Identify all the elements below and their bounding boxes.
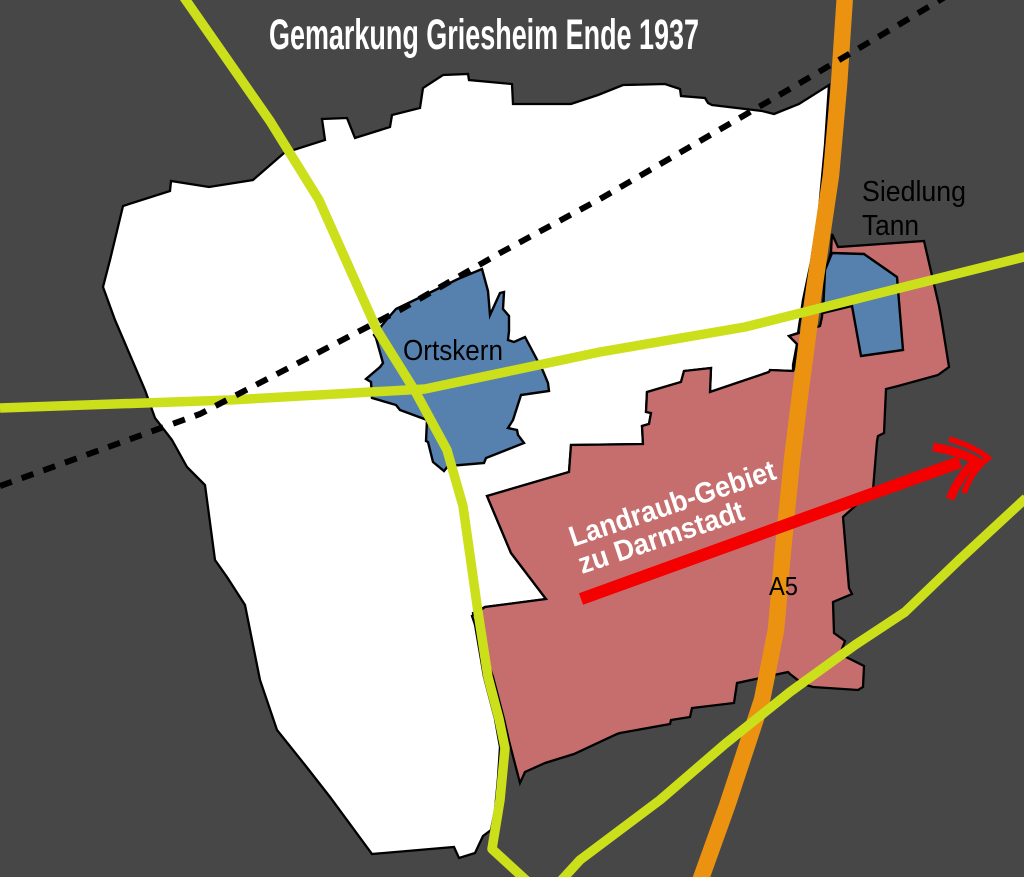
svg-text:A5: A5 bbox=[769, 573, 798, 601]
svg-text:Tann: Tann bbox=[862, 210, 919, 242]
svg-text:Gemarkung Griesheim Ende 1937: Gemarkung Griesheim Ende 1937 bbox=[269, 11, 699, 59]
svg-text:Siedlung: Siedlung bbox=[862, 176, 966, 208]
svg-text:Ortskern: Ortskern bbox=[403, 335, 503, 367]
